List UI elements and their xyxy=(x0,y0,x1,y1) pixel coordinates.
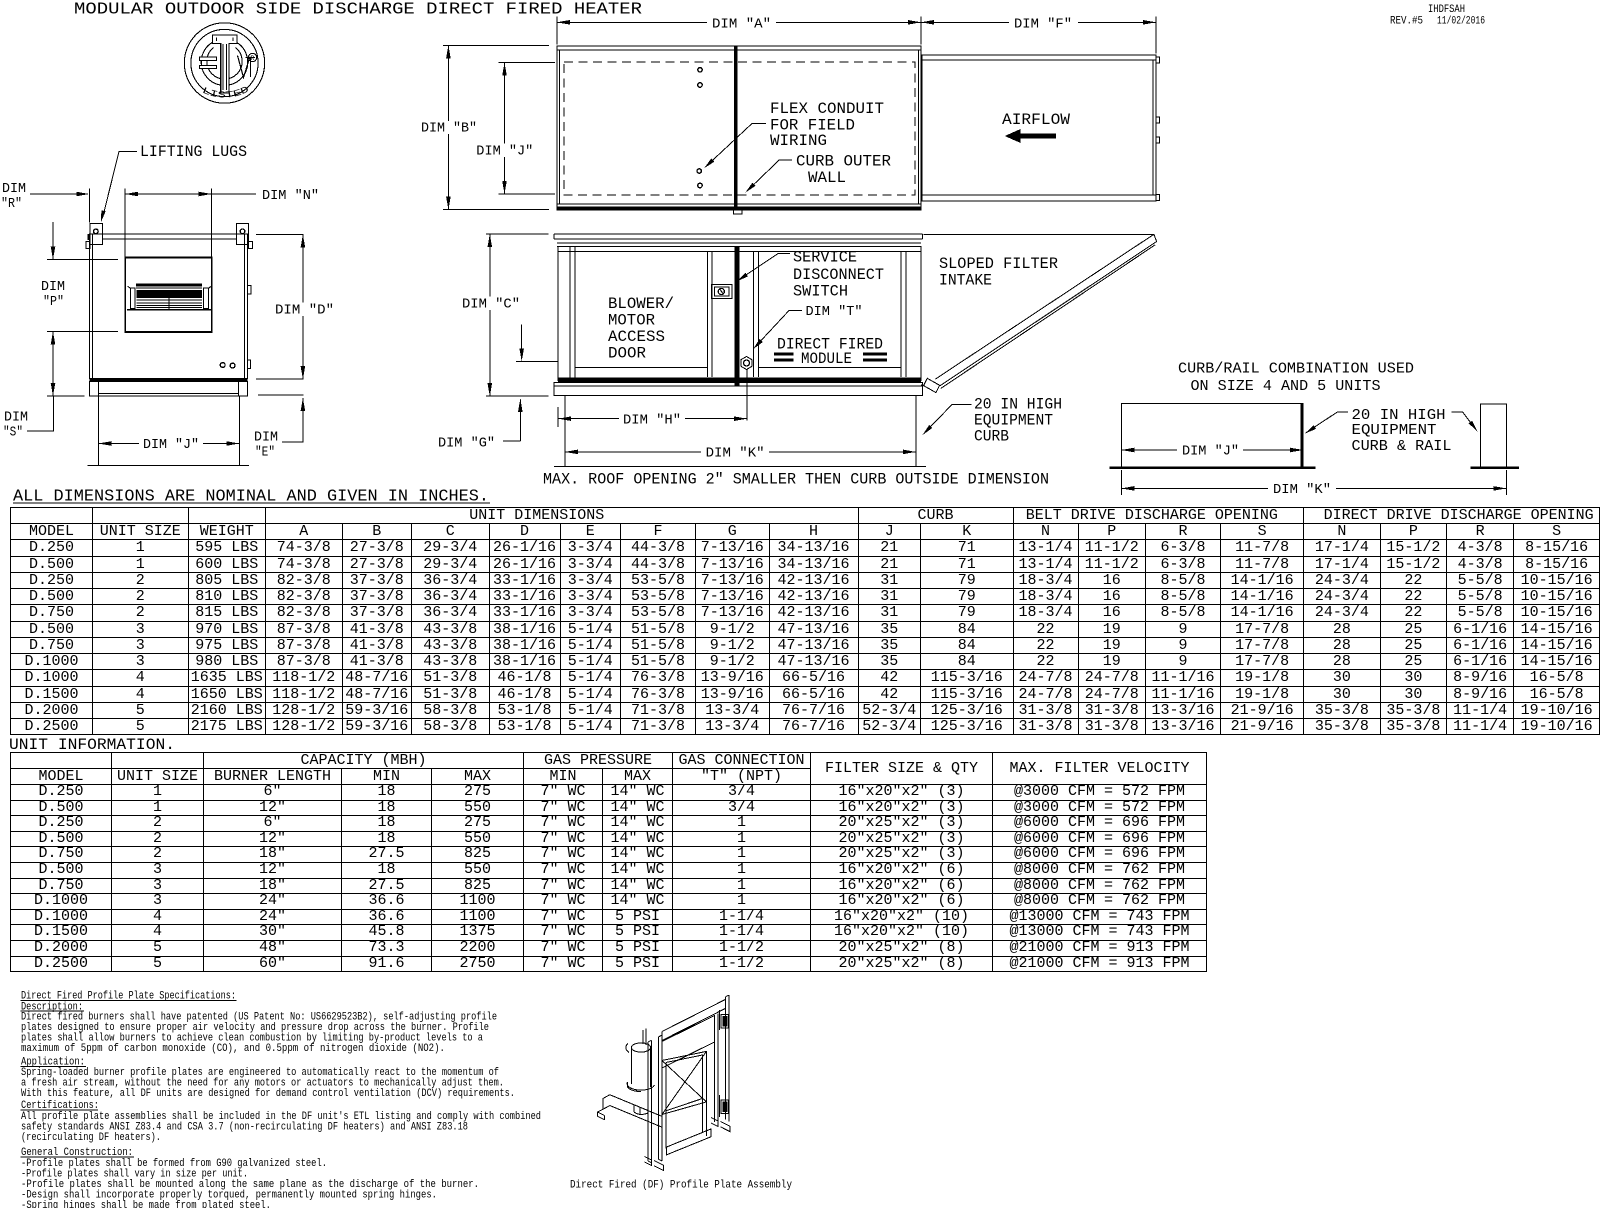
svg-text:R: R xyxy=(251,55,255,62)
svg-text:CURB/RAIL COMBINATION USED: CURB/RAIL COMBINATION USED xyxy=(1178,361,1414,378)
svg-text:DIM: DIM xyxy=(254,430,278,446)
svg-text:DIM: DIM xyxy=(2,181,26,197)
svg-text:DIM "G": DIM "G" xyxy=(438,436,495,452)
svg-text:"S": "S" xyxy=(3,425,23,441)
svg-text:DIM "H": DIM "H" xyxy=(623,413,681,429)
svg-text:SLOPED FILTER: SLOPED FILTER xyxy=(939,255,1058,273)
svg-text:DIM "K": DIM "K" xyxy=(706,446,765,462)
svg-text:DIM "B": DIM "B" xyxy=(421,121,477,137)
svg-text:DIM "F": DIM "F" xyxy=(1014,17,1072,33)
svg-text:CURB: CURB xyxy=(974,428,1009,446)
svg-text:SERVICE: SERVICE xyxy=(793,249,857,267)
svg-text:"R": "R" xyxy=(1,196,22,212)
svg-text:DIM "J": DIM "J" xyxy=(1182,444,1239,460)
svg-text:ACCESS: ACCESS xyxy=(608,328,665,346)
svg-text:DOOR: DOOR xyxy=(608,345,646,363)
svg-text:DIM "C": DIM "C" xyxy=(462,297,520,313)
svg-text:"E": "E" xyxy=(255,445,275,461)
svg-text:DIM "T": DIM "T" xyxy=(806,304,863,320)
svg-text:MODULE: MODULE xyxy=(801,350,852,368)
svg-text:DIM "A": DIM "A" xyxy=(712,17,771,33)
svg-text:With this feature, all DF unit: With this feature, all DF units are desi… xyxy=(21,1088,515,1100)
svg-text:maximum of 5ppm of carbon mono: maximum of 5ppm of carbon monoxide (CO),… xyxy=(21,1043,445,1055)
svg-text:DIM "J": DIM "J" xyxy=(476,144,533,160)
svg-text:MOTOR: MOTOR xyxy=(608,312,655,330)
svg-text:DIM "K": DIM "K" xyxy=(1273,482,1331,498)
svg-text:CURB OUTER: CURB OUTER xyxy=(796,153,891,171)
svg-text:BLOWER/: BLOWER/ xyxy=(608,295,674,313)
svg-text:SWITCH: SWITCH xyxy=(793,283,848,301)
svg-text:CURB & RAIL: CURB & RAIL xyxy=(1352,438,1452,455)
svg-text:DISCONNECT: DISCONNECT xyxy=(793,266,884,284)
svg-text:(recirculating DF heaters).: (recirculating DF heaters). xyxy=(21,1132,161,1144)
svg-text:"P": "P" xyxy=(43,294,64,310)
svg-text:DIM "D": DIM "D" xyxy=(275,303,334,319)
svg-text:IHDFSAH: IHDFSAH xyxy=(1428,4,1465,16)
svg-text:WALL: WALL xyxy=(808,169,846,187)
svg-text:Direct Fired (DF) Profile Plat: Direct Fired (DF) Profile Plate Assembly xyxy=(570,1180,792,1192)
svg-text:EQUIPMENT: EQUIPMENT xyxy=(1352,422,1437,439)
svg-text:DIM: DIM xyxy=(4,410,28,426)
svg-text:MAX. ROOF OPENING 2" SMALLER T: MAX. ROOF OPENING 2" SMALLER THEN CURB O… xyxy=(543,471,1049,489)
svg-text:-Spring hinges shall be made f: -Spring hinges shall be made from plated… xyxy=(21,1200,271,1208)
svg-text:FLEX CONDUIT: FLEX CONDUIT xyxy=(770,100,884,118)
svg-text:DIM "J": DIM "J" xyxy=(143,437,199,453)
svg-text:DIM: DIM xyxy=(41,279,65,295)
svg-text:DIM "N": DIM "N" xyxy=(262,188,319,204)
svg-text:11/02/2016: 11/02/2016 xyxy=(1437,16,1485,28)
svg-text:REV.#5: REV.#5 xyxy=(1390,16,1423,28)
svg-text:ON SIZE 4 AND 5 UNITS: ON SIZE 4 AND 5 UNITS xyxy=(1191,378,1381,395)
svg-text:WIRING: WIRING xyxy=(770,132,827,150)
svg-text:AIRFLOW: AIRFLOW xyxy=(1002,111,1070,129)
svg-text:INTAKE: INTAKE xyxy=(939,272,992,290)
svg-text:LIFTING LUGS: LIFTING LUGS xyxy=(140,143,247,161)
